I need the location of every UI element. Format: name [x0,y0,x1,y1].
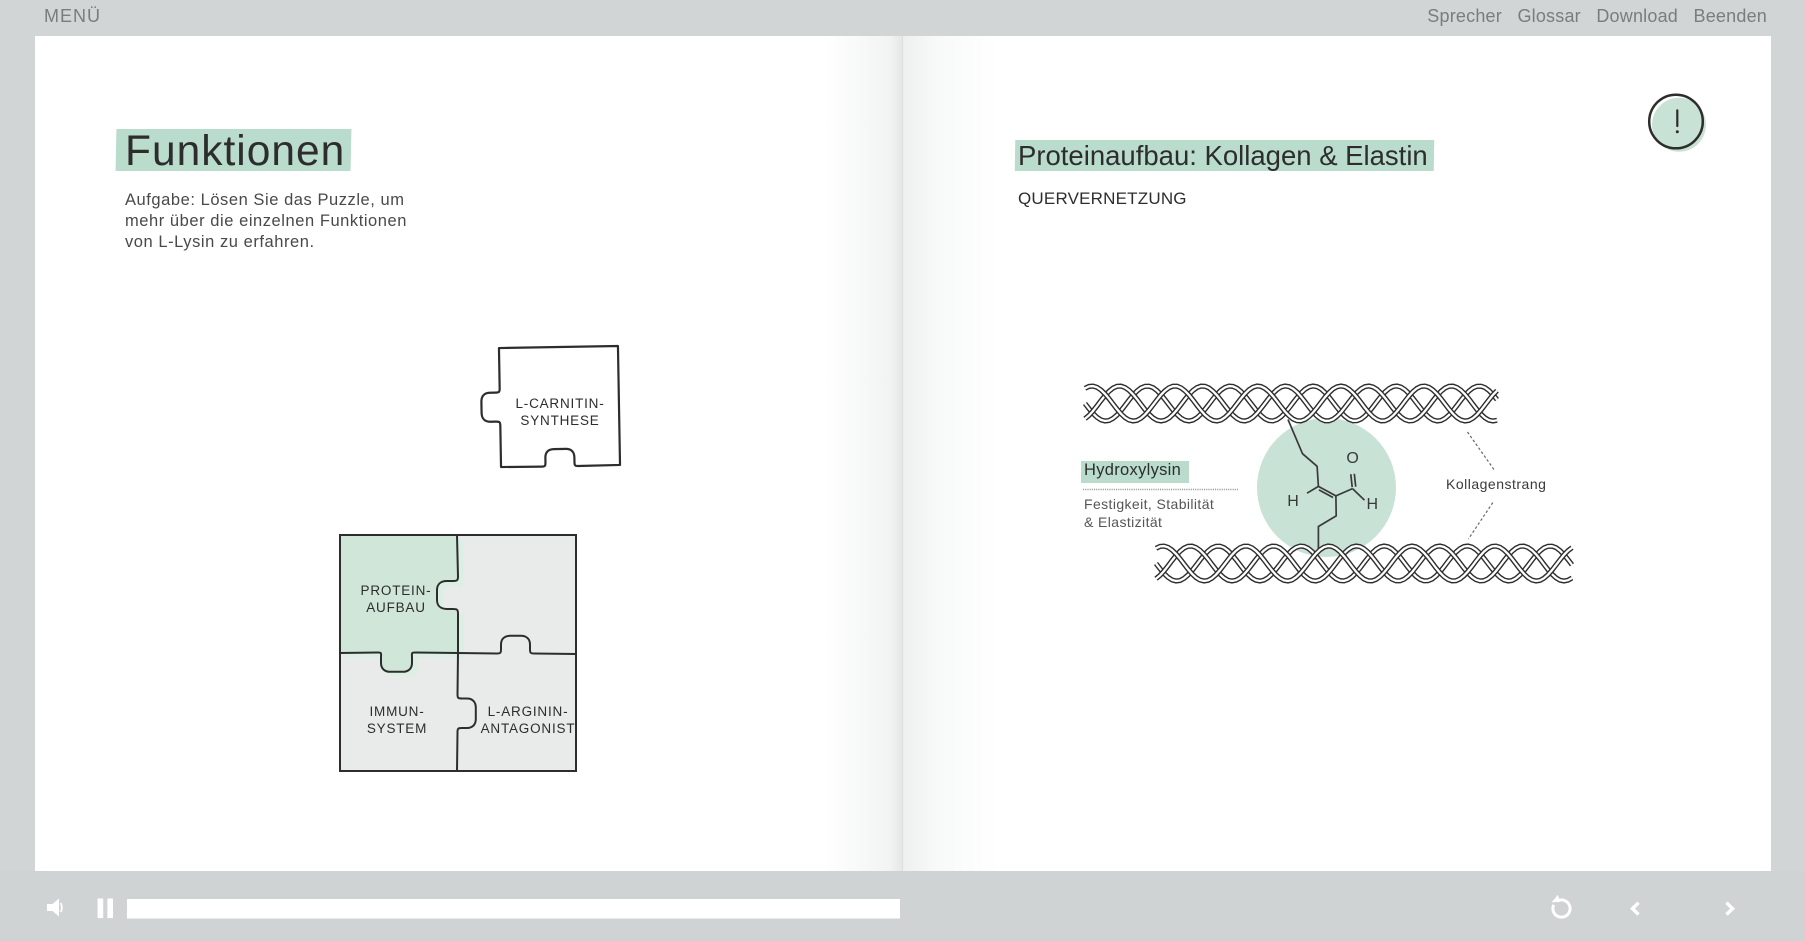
svg-text:H: H [1287,493,1299,510]
svg-text:H: H [1367,496,1379,513]
svg-text:O: O [1346,450,1358,467]
